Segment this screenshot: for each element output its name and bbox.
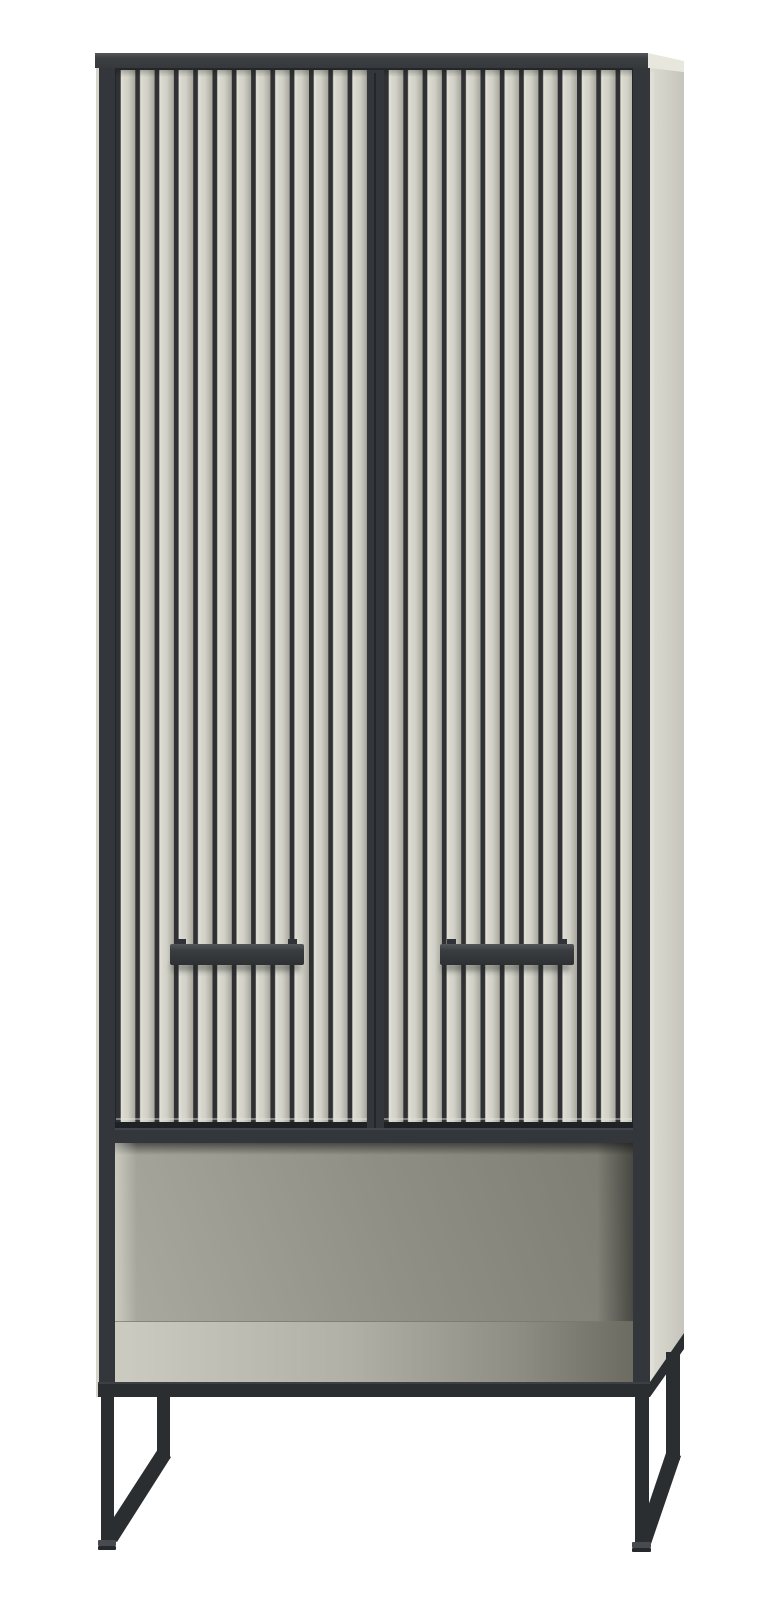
right-foot-base xyxy=(632,1548,651,1552)
base-rail-top-edge xyxy=(98,1382,650,1384)
cabinet-illustration: Tall two-door storage cabinet with verti… xyxy=(0,0,780,1600)
top-panel xyxy=(95,53,648,68)
left-post-highlight xyxy=(96,68,99,1397)
niche-top-shadow xyxy=(115,1143,633,1155)
door-seam xyxy=(374,73,376,1139)
right-leg-back-post xyxy=(666,1352,680,1460)
divider-band xyxy=(99,1128,648,1143)
side-front-edge-highlight xyxy=(650,72,654,1382)
left-foot xyxy=(98,1540,116,1546)
niche-back-panel xyxy=(115,1143,633,1323)
niche-right-wall-shadow xyxy=(597,1143,633,1323)
right-handle-bar xyxy=(440,944,574,965)
left-foot-base xyxy=(98,1546,116,1550)
niche-floor xyxy=(115,1322,633,1382)
base-rail xyxy=(98,1382,650,1397)
left-handle-bar xyxy=(170,944,304,965)
left-leg-front-post xyxy=(101,1397,114,1542)
left-post xyxy=(99,68,115,1397)
right-foot xyxy=(632,1542,651,1548)
right-post xyxy=(633,68,650,1397)
divider-top-edge xyxy=(99,1128,648,1130)
product-image: Tall two-door storage cabinet with verti… xyxy=(0,0,780,1600)
side-panel xyxy=(650,68,684,1382)
niche-left-wall-light xyxy=(115,1143,137,1323)
right-leg-front-post xyxy=(635,1397,649,1544)
